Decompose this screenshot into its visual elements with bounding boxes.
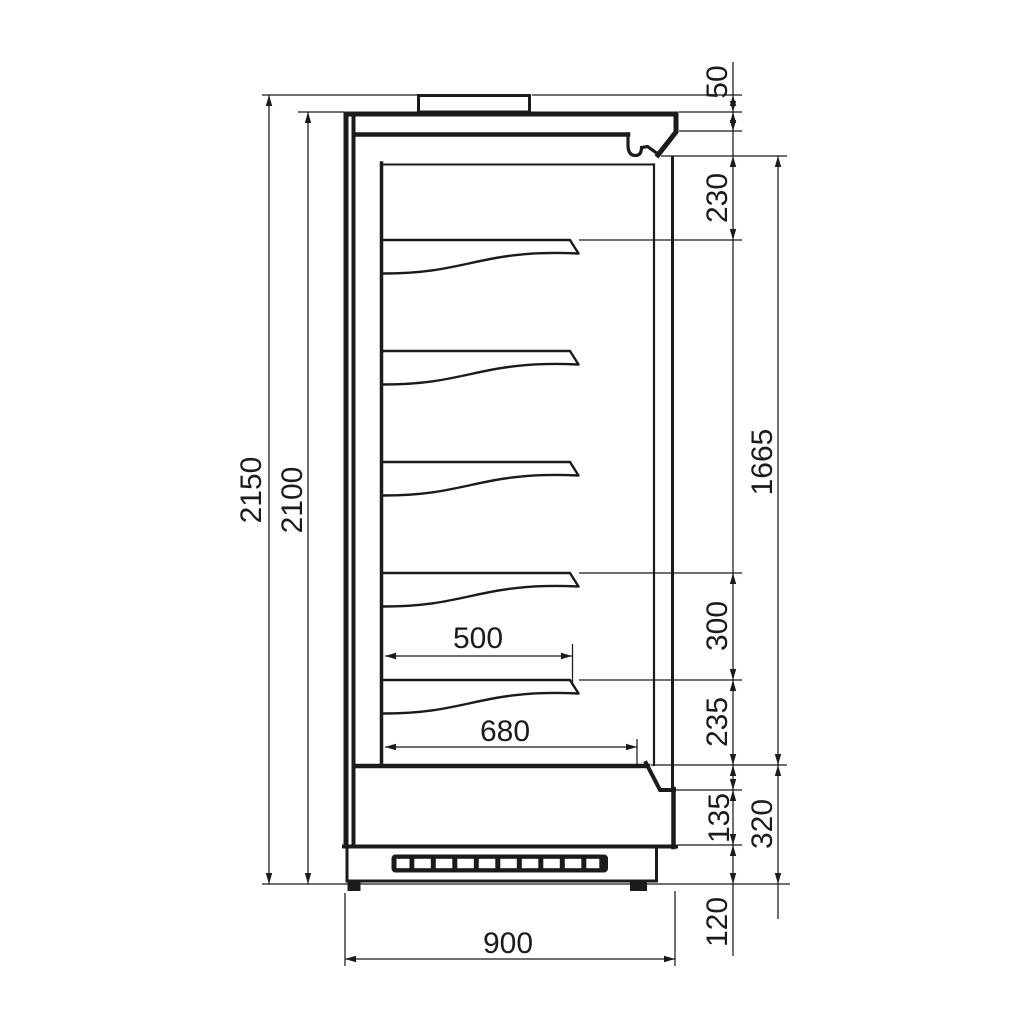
- dim-arrow: [561, 653, 572, 659]
- dim-label-deck-height: 320: [746, 799, 779, 849]
- dim-arrow: [664, 956, 675, 962]
- cabinet-section-drawing: 2150 2100 50 230 1665 300 235 135 320 12…: [0, 0, 1024, 1024]
- shelf-3: [383, 462, 579, 496]
- dim-arrow: [345, 956, 356, 962]
- dim-arrow: [730, 845, 736, 856]
- foot-left: [348, 882, 361, 891]
- grille-slot: [586, 859, 599, 868]
- dim-label-overall-depth: 900: [483, 927, 533, 960]
- dim-arrow: [730, 680, 736, 691]
- dim-label-internal-depth: 680: [480, 715, 530, 748]
- drawing-canvas: 2150 2100 50 230 1665 300 235 135 320 12…: [0, 0, 1024, 1024]
- dim-arrow: [385, 653, 396, 659]
- dim-label-shelf-depth: 500: [453, 622, 503, 655]
- shelf-5: [383, 680, 579, 714]
- foot-right: [630, 882, 647, 891]
- dim-arrow: [775, 765, 781, 776]
- dim-arrow: [730, 779, 736, 790]
- dim-arrow: [730, 754, 736, 765]
- grille-slot: [500, 859, 517, 868]
- dim-label-plinth-height: 120: [701, 897, 734, 947]
- grille-slot: [479, 859, 496, 868]
- dim-arrow: [775, 754, 781, 765]
- dim-arrow: [730, 229, 736, 240]
- dim-label-body-height: 2100: [276, 467, 309, 534]
- dim-arrow: [730, 573, 736, 584]
- dim-arrow: [730, 101, 736, 112]
- dim-label-spigot-height: 50: [701, 65, 734, 98]
- shelf-1: [383, 240, 579, 274]
- dim-arrow: [266, 873, 272, 884]
- deck-front-step: [646, 763, 674, 790]
- dim-arrow: [730, 120, 736, 131]
- dim-label-canopy-to-shelf: 230: [701, 173, 734, 223]
- grille-slot: [457, 859, 474, 868]
- shelf-2: [383, 351, 579, 385]
- grille-slot: [522, 859, 539, 868]
- dim-label-opening-height: 1665: [746, 429, 779, 496]
- dim-arrow: [775, 873, 781, 884]
- grille-slot: [565, 859, 582, 868]
- shelf-4: [383, 573, 579, 607]
- grille-slot: [543, 859, 560, 868]
- top-spigot-box: [419, 96, 530, 113]
- air-outlet-zigzag-icon: [628, 134, 658, 156]
- dim-arrow: [626, 744, 637, 750]
- grille-slot: [436, 859, 453, 868]
- dim-arrow: [385, 744, 396, 750]
- cabinet-structure: [344, 96, 676, 882]
- dim-label-front-panel: 135: [703, 793, 736, 843]
- dimension-labels: 2150 2100 50 230 1665 300 235 135 320 12…: [235, 65, 779, 960]
- dim-arrow: [730, 156, 736, 167]
- base-details: [348, 855, 648, 892]
- dim-arrow: [730, 765, 736, 776]
- dim-arrow: [730, 873, 736, 884]
- dim-arrow: [775, 156, 781, 167]
- dim-label-shelf-spacing: 300: [701, 601, 734, 651]
- dim-arrow: [305, 873, 311, 884]
- dim-arrow: [266, 95, 272, 106]
- dim-label-shelf-to-deck: 235: [701, 697, 734, 747]
- dim-arrow: [730, 669, 736, 680]
- grille-slot: [397, 859, 410, 868]
- grille-slot: [414, 859, 431, 868]
- dim-arrow: [305, 112, 311, 123]
- dim-label-overall-height: 2150: [235, 457, 268, 524]
